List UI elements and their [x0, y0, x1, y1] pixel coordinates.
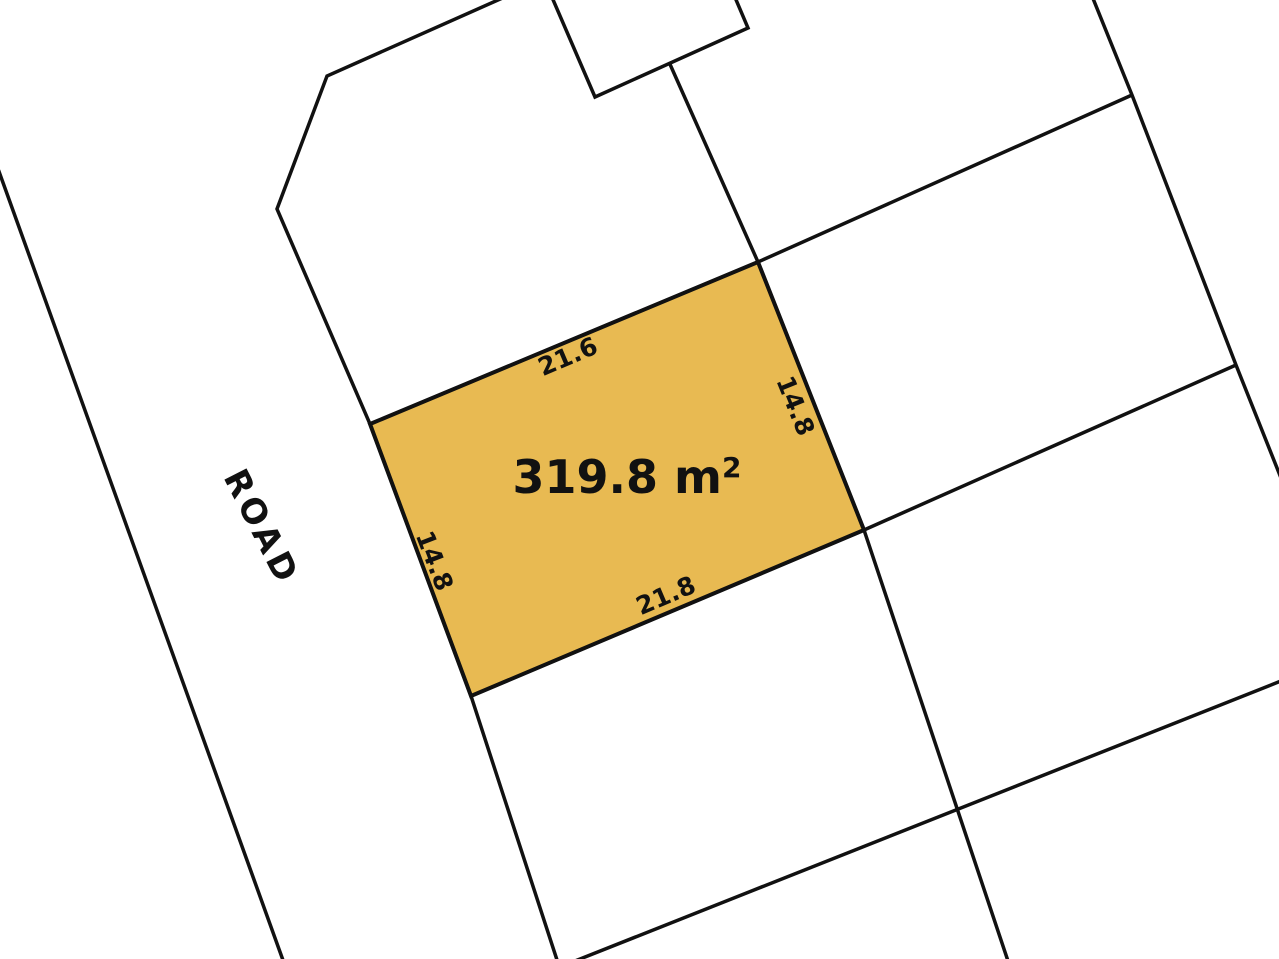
lot-plan-map: ROAD 319.8 m2 21.6 14.8 14.8 21.8 — [0, 0, 1279, 959]
lot-area-superscript: 2 — [722, 451, 741, 484]
lot-area-label: 319.8 m2 — [513, 450, 742, 504]
lot-area-value: 319.8 m — [513, 450, 722, 504]
